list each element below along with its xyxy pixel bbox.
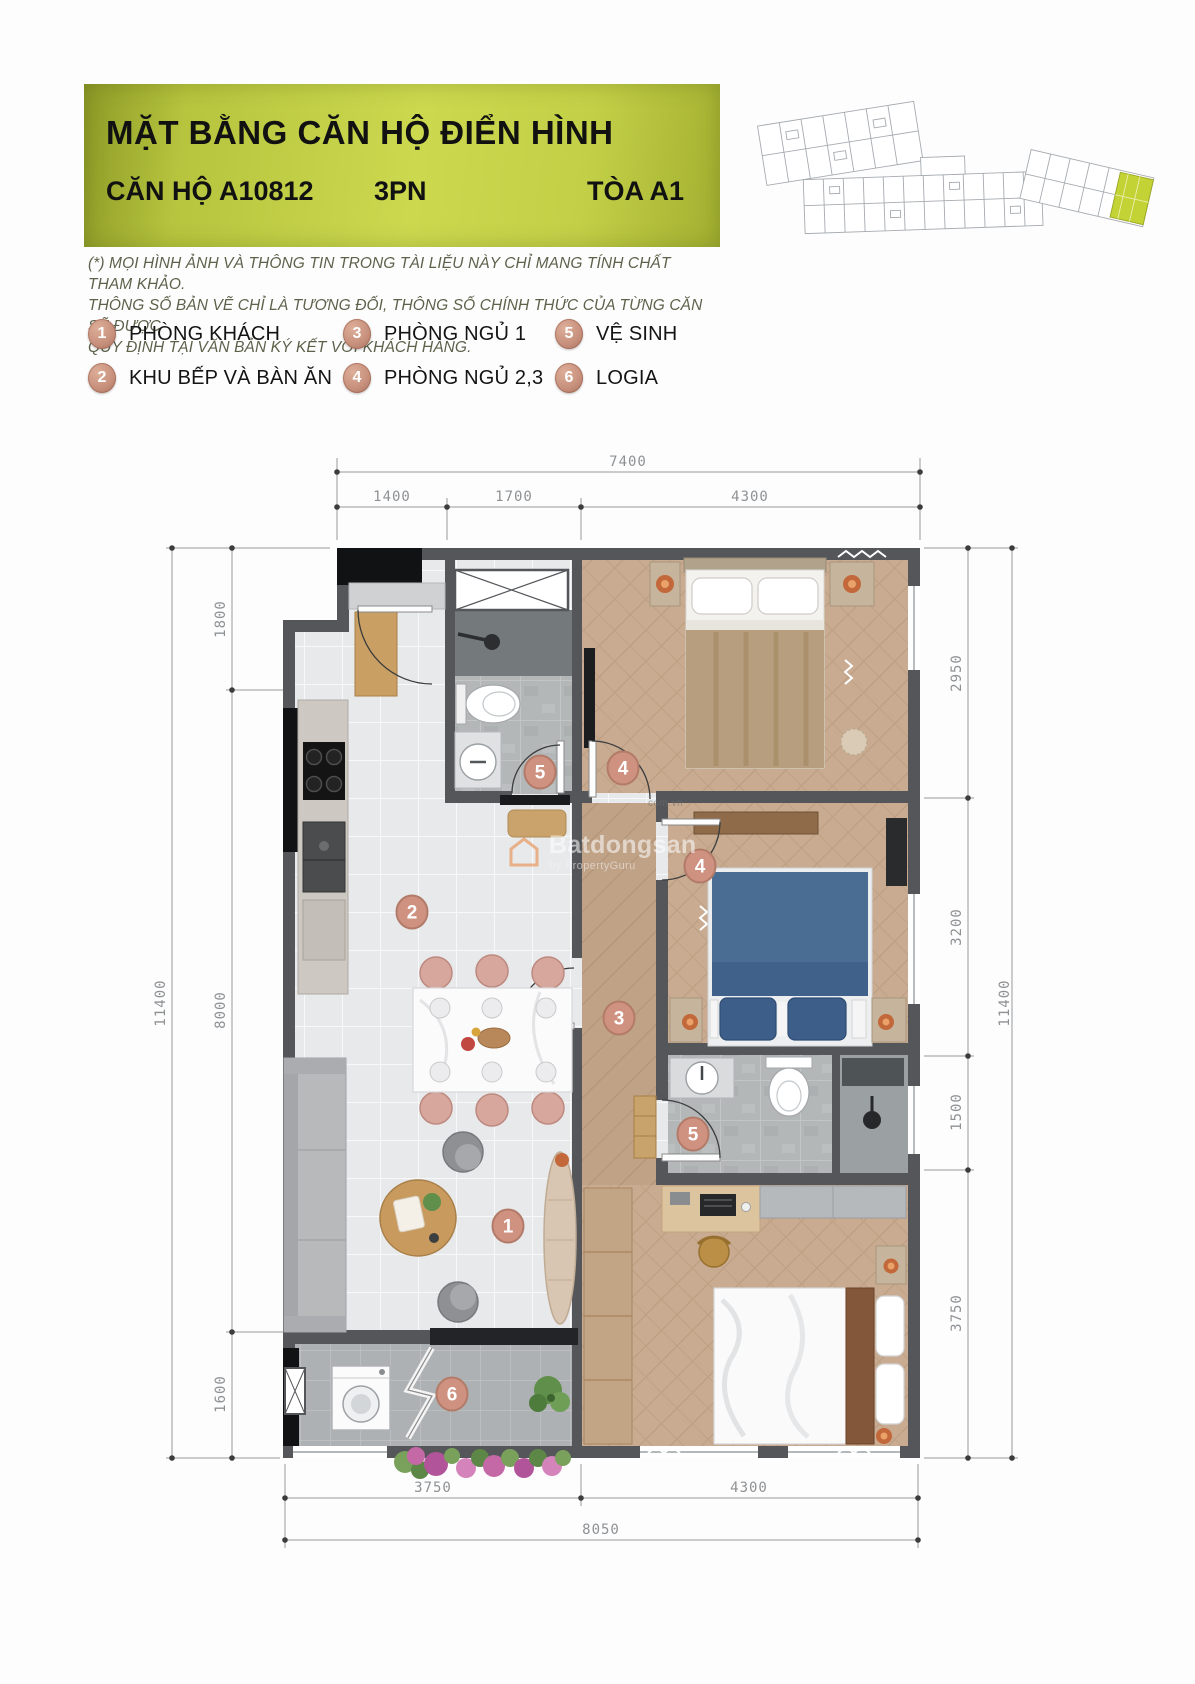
bed3-headboard [846, 1288, 874, 1444]
dim-bottom-overall: 8050 [582, 1522, 620, 1538]
room-marker-number: 4 [618, 759, 629, 780]
dim-top-seg: 1400 [373, 489, 411, 505]
dining-set [413, 955, 572, 1126]
flower-box [394, 1447, 571, 1479]
entry-wood-board [355, 612, 397, 696]
room-marker-number: 5 [688, 1125, 699, 1146]
dim-right-seg: 1500 [949, 1093, 965, 1131]
room-marker-number: 2 [407, 903, 418, 924]
room-marker-number: 3 [614, 1009, 625, 1030]
dim-top-seg: 4300 [731, 489, 769, 505]
room-marker-number: 1 [503, 1217, 514, 1238]
hanging-chair [544, 1152, 576, 1324]
dim-top-overall: 7400 [609, 454, 647, 470]
floor-plan-drawing: 7400 1400 1700 4300 3750 4300 8050 1800 … [0, 0, 1195, 1684]
bathroom1-shower [455, 610, 575, 676]
dim-bottom-seg: 3750 [414, 1480, 452, 1496]
room-marker-number: 4 [695, 857, 706, 878]
desk-chair [699, 1237, 729, 1267]
dim-left-seg: 1600 [213, 1375, 229, 1413]
room-marker-number: 6 [447, 1385, 458, 1406]
dim-left-seg: 8000 [213, 991, 229, 1029]
tv-console [584, 648, 595, 748]
corridor-console [634, 1096, 656, 1158]
dim-right-overall: 11400 [997, 979, 1013, 1026]
vanity-counter [842, 1058, 904, 1086]
dim-left-overall: 11400 [153, 979, 169, 1026]
room-marker-number: 5 [535, 763, 546, 784]
refrigerator [303, 822, 345, 892]
dim-right-seg: 3200 [949, 908, 965, 946]
bedroom2-wardrobe [886, 818, 907, 886]
dim-right-seg: 3750 [949, 1294, 965, 1332]
floorplan-page: MẶT BẰNG CĂN HỘ ĐIỂN HÌNH CĂN HỘ A10812 … [0, 0, 1195, 1684]
dim-bottom-seg: 4300 [730, 1480, 768, 1496]
door-mat [508, 810, 566, 837]
dim-right-seg: 2950 [949, 654, 965, 692]
dim-left-seg: 1800 [213, 600, 229, 638]
dim-top-seg: 1700 [495, 489, 533, 505]
